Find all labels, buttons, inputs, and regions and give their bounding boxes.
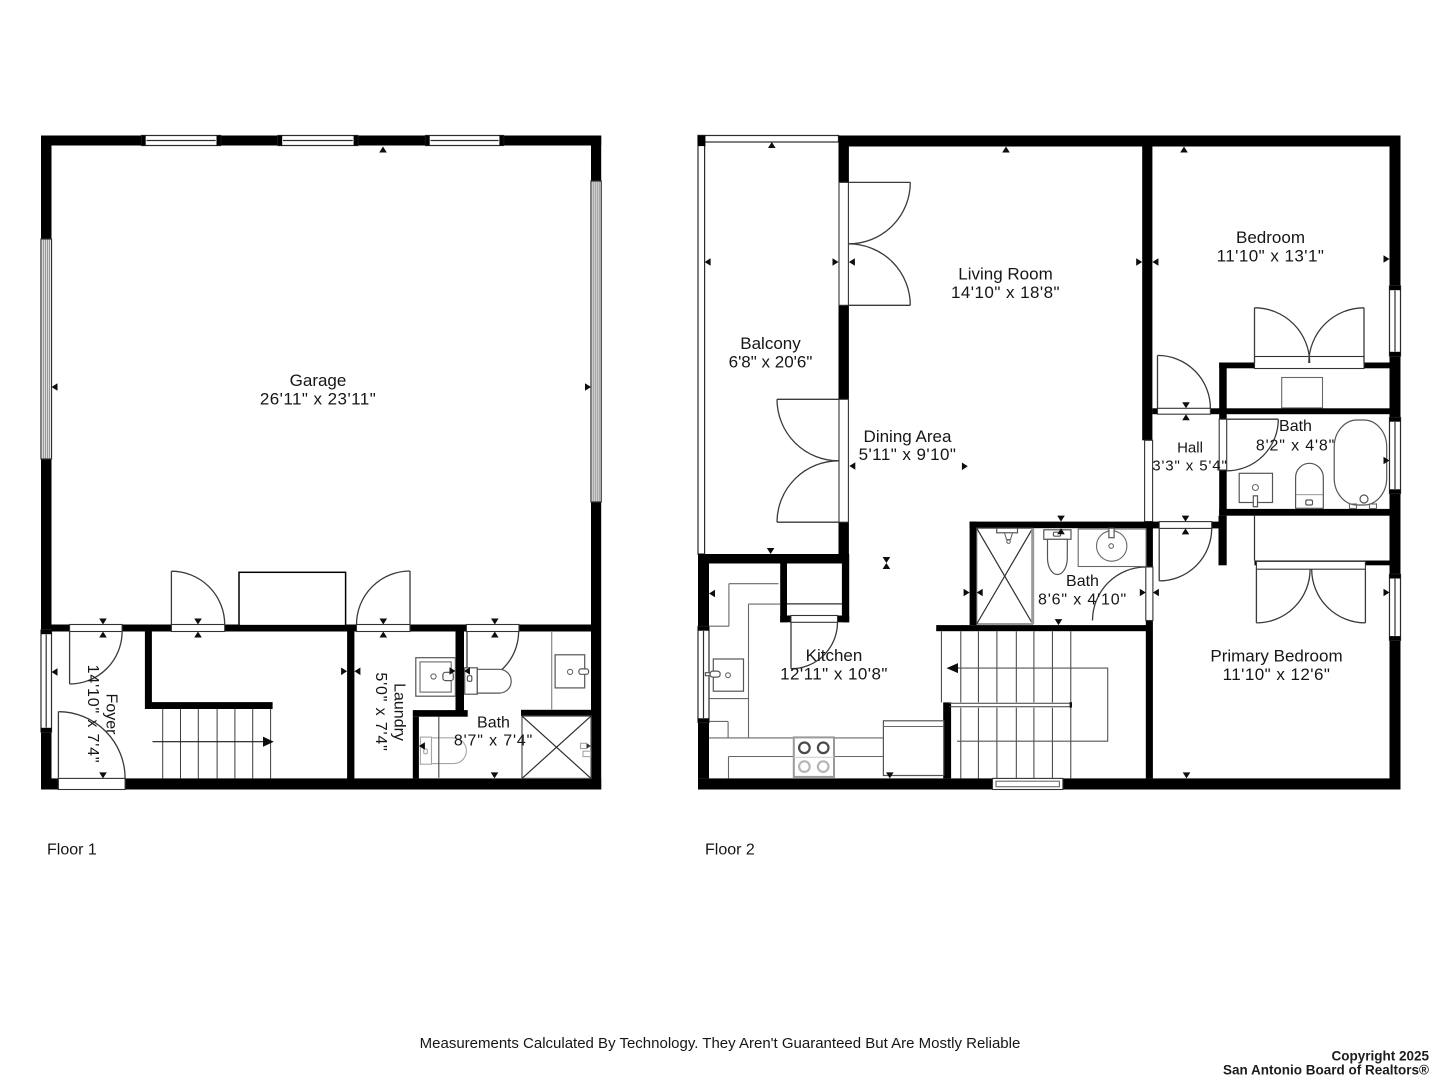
svg-text:5'11" x 9'10": 5'11" x 9'10" <box>859 445 957 464</box>
svg-text:Copyright 2025: Copyright 2025 <box>1331 1049 1429 1064</box>
svg-text:6'8" x 20'6": 6'8" x 20'6" <box>729 353 813 372</box>
svg-text:Bath: Bath <box>1066 573 1099 590</box>
svg-text:Primary Bedroom: Primary Bedroom <box>1210 647 1342 666</box>
svg-text:San Antonio Board of Realtors®: San Antonio Board of Realtors® <box>1223 1063 1429 1078</box>
svg-text:Floor 1: Floor 1 <box>47 842 97 859</box>
svg-text:Hall: Hall <box>1177 440 1203 457</box>
svg-text:5'0" x 7'4": 5'0" x 7'4" <box>372 672 389 751</box>
svg-text:Bath: Bath <box>1279 418 1312 435</box>
svg-text:8'7" x 7'4": 8'7" x 7'4" <box>454 732 533 749</box>
svg-text:8'2" x 4'8": 8'2" x 4'8" <box>1256 437 1335 454</box>
svg-text:Kitchen: Kitchen <box>806 646 863 665</box>
svg-text:Bedroom: Bedroom <box>1236 228 1305 247</box>
svg-text:Laundry: Laundry <box>391 683 408 741</box>
svg-text:Dining Area: Dining Area <box>864 427 952 446</box>
svg-text:14'10" x 18'8": 14'10" x 18'8" <box>951 283 1060 302</box>
svg-text:Garage: Garage <box>290 371 347 390</box>
svg-text:8'6" x 4'10": 8'6" x 4'10" <box>1038 591 1127 608</box>
svg-text:14'10" x 7'4": 14'10" x 7'4" <box>84 665 101 764</box>
svg-text:11'10" x 13'1": 11'10" x 13'1" <box>1217 247 1325 266</box>
svg-text:Floor 2: Floor 2 <box>705 842 755 859</box>
svg-text:3'3" x 5'4": 3'3" x 5'4" <box>1152 458 1227 475</box>
svg-text:26'11" x 23'11": 26'11" x 23'11" <box>260 390 376 409</box>
svg-text:Measurements Calculated By Tec: Measurements Calculated By Technology. T… <box>420 1035 1021 1052</box>
svg-text:11'10" x 12'6": 11'10" x 12'6" <box>1223 665 1331 684</box>
svg-text:Balcony: Balcony <box>740 334 801 353</box>
svg-text:Foyer: Foyer <box>103 694 120 736</box>
svg-text:Living Room: Living Room <box>958 265 1053 284</box>
svg-text:Bath: Bath <box>477 715 510 732</box>
svg-text:12'11" x 10'8": 12'11" x 10'8" <box>780 665 888 684</box>
